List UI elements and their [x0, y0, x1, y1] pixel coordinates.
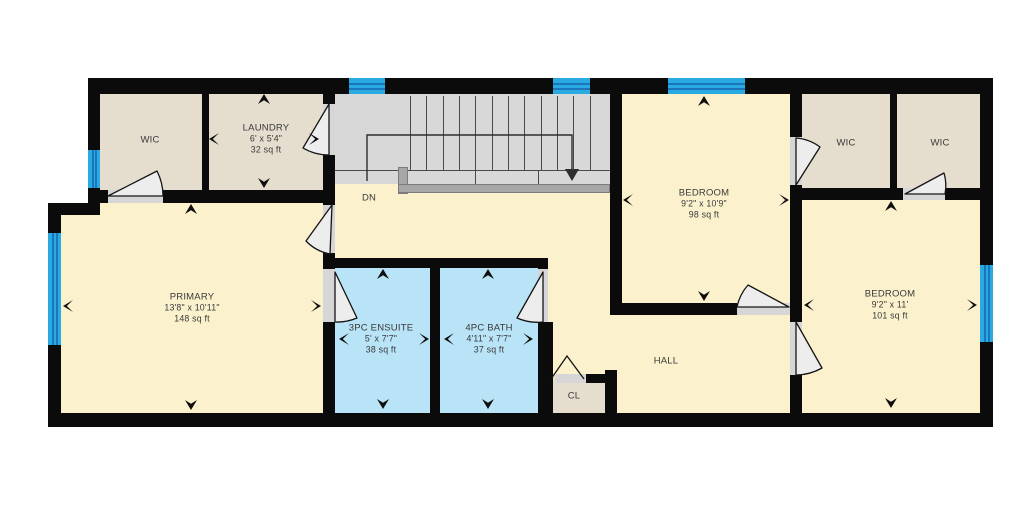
wall	[48, 413, 993, 427]
wall	[586, 374, 605, 383]
wall	[790, 375, 802, 413]
label-closet: CL	[568, 391, 581, 402]
door-threshold	[108, 190, 163, 203]
window	[349, 78, 385, 94]
stair-riser-line	[538, 170, 539, 184]
window-frame-line	[984, 265, 986, 342]
label-line: BEDROOM	[679, 188, 730, 199]
wall	[88, 190, 108, 203]
wall	[605, 370, 617, 413]
wall	[323, 322, 335, 413]
stair-riser-line	[426, 96, 427, 170]
door-threshold	[323, 269, 335, 322]
label-line: DN	[362, 193, 376, 204]
floor-plan-layer: HALLWICLAUNDRY6' x 5'4"32 sq ftBEDROOM9'…	[0, 0, 1024, 507]
label-line: 98 sq ft	[679, 210, 730, 221]
door-threshold	[538, 269, 548, 322]
label-bath: 4PC BATH4'11" x 7'7"37 sq ft	[465, 323, 512, 356]
wall	[48, 203, 100, 215]
label-line: 5' x 7'7"	[349, 334, 414, 345]
label-wic-right-1: WIC	[836, 138, 855, 149]
label-ensuite: 3PC ENSUITE5' x 7'7"38 sq ft	[349, 323, 414, 356]
label-line: 4PC BATH	[465, 323, 512, 334]
label-stairs-direction: DN	[362, 193, 376, 204]
stair-riser-line	[475, 96, 476, 170]
wall	[890, 94, 897, 188]
window-frame-line	[668, 83, 745, 85]
stair-riser-line	[590, 96, 591, 170]
label-line: 4'11" x 7'7"	[465, 334, 512, 345]
wall	[790, 188, 903, 200]
wall	[790, 185, 802, 322]
window-frame-line	[988, 265, 990, 342]
window	[48, 233, 61, 345]
window-frame-line	[52, 233, 54, 345]
door-threshold	[790, 137, 802, 185]
window-frame-line	[56, 233, 58, 345]
label-line: 6' x 5'4"	[243, 134, 290, 145]
stair-riser-line	[475, 170, 476, 184]
label-line: 101 sq ft	[865, 311, 916, 322]
label-line: 148 sq ft	[164, 314, 219, 325]
room-fill-primary-west	[60, 215, 105, 413]
label-line: 37 sq ft	[465, 345, 512, 356]
wall	[610, 303, 737, 315]
label-line: LAUNDRY	[243, 123, 290, 134]
window	[668, 78, 745, 94]
label-wic-right-2: WIC	[930, 138, 949, 149]
wall	[163, 190, 335, 203]
room-fill-hall-main	[610, 315, 790, 413]
label-line: WIC	[836, 138, 855, 149]
window-frame-line	[349, 88, 385, 90]
label-line: PRIMARY	[164, 292, 219, 303]
door-threshold	[903, 188, 945, 200]
stair-riser-line	[492, 96, 493, 170]
wall	[980, 78, 993, 426]
label-line: 38 sq ft	[349, 345, 414, 356]
wall	[790, 94, 802, 137]
door-threshold	[737, 303, 790, 315]
wall	[945, 188, 980, 200]
stair-riser-line	[459, 96, 460, 170]
label-line: 13'8" x 10'11"	[164, 303, 219, 314]
window-frame-line	[553, 88, 590, 90]
label-line: CL	[568, 391, 581, 402]
door-threshold	[323, 205, 335, 253]
label-line: BEDROOM	[865, 289, 916, 300]
label-line: 32 sq ft	[243, 145, 290, 156]
stair-riser-line	[557, 96, 558, 170]
label-line: 9'2" x 11'	[865, 300, 916, 311]
window-frame-line	[349, 83, 385, 85]
door-threshold	[556, 374, 586, 383]
stair-railing	[398, 184, 610, 193]
stair-riser-line	[508, 96, 509, 170]
window-frame-line	[95, 150, 97, 188]
wall	[323, 253, 335, 269]
label-line: WIC	[140, 135, 159, 146]
wall	[88, 78, 993, 94]
window	[980, 265, 993, 342]
label-wic-top-left: WIC	[140, 135, 159, 146]
room-fill-hall-landing	[335, 184, 610, 258]
label-bedroom-top: BEDROOM9'2" x 10'9"98 sq ft	[679, 188, 730, 221]
label-line: 9'2" x 10'9"	[679, 199, 730, 210]
stair-riser-line	[541, 96, 542, 170]
wall	[538, 258, 548, 269]
wall	[323, 94, 335, 104]
wall	[430, 258, 440, 413]
wall	[538, 322, 553, 413]
window-frame-line	[553, 83, 590, 85]
window-frame-line	[668, 88, 745, 90]
stair-riser-line	[410, 96, 411, 170]
window	[88, 150, 100, 188]
floor-plan: HALLWICLAUNDRY6' x 5'4"32 sq ftBEDROOM9'…	[0, 0, 1024, 507]
wall	[610, 94, 622, 315]
stair-riser-line	[573, 96, 574, 170]
window	[553, 78, 590, 94]
label-hall-main: HALL	[654, 356, 679, 367]
stair-riser-line	[524, 96, 525, 170]
label-bedroom-right: BEDROOM9'2" x 11'101 sq ft	[865, 289, 916, 322]
label-primary: PRIMARY13'8" x 10'11"148 sq ft	[164, 292, 219, 325]
stair-landing-line	[335, 170, 610, 171]
door-threshold	[790, 322, 802, 375]
label-line: WIC	[930, 138, 949, 149]
wall	[202, 94, 209, 190]
label-line: HALL	[654, 356, 679, 367]
door-threshold	[323, 104, 335, 155]
label-laundry: LAUNDRY6' x 5'4"32 sq ft	[243, 123, 290, 156]
stair-riser-line	[443, 96, 444, 170]
window-frame-line	[92, 150, 94, 188]
label-line: 3PC ENSUITE	[349, 323, 414, 334]
